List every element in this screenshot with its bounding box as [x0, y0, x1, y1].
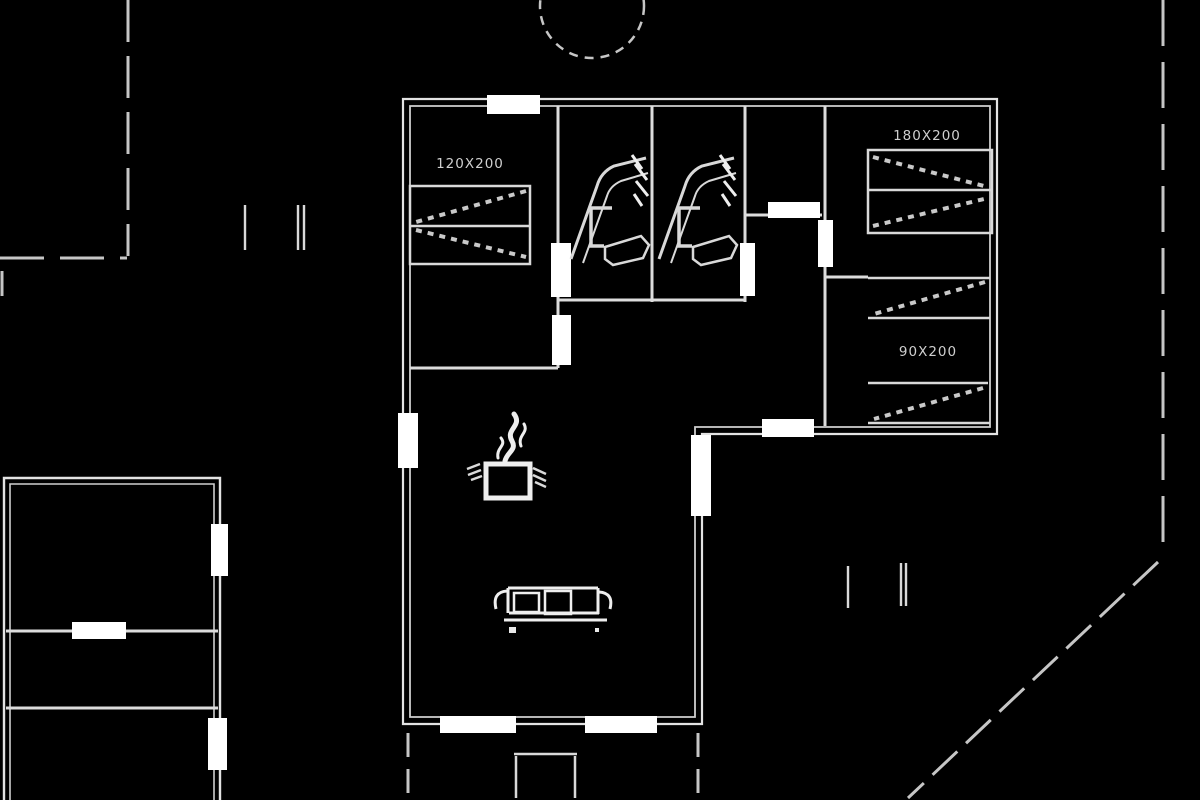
garage-door-opening-upper	[211, 524, 228, 576]
garage-inner-wall	[10, 484, 214, 800]
sofa-leg-left	[509, 627, 516, 633]
terrace	[408, 733, 698, 798]
fireplace-icon	[486, 464, 530, 498]
wall-openings	[398, 95, 833, 733]
flame-icon-small-left	[498, 438, 503, 458]
sofa	[495, 588, 611, 633]
faucet-icon	[632, 155, 648, 206]
sofa-cushion-1	[514, 593, 539, 612]
door-right-bedroom	[818, 220, 833, 267]
bed-hatch-single-1	[874, 282, 985, 314]
toilet-icon	[605, 236, 649, 265]
bed-size-label-single: 90X200	[899, 344, 957, 360]
window-top-wall	[487, 95, 540, 114]
floor-plan-page: 120X200 180X200 90X200	[0, 0, 1200, 800]
door-right-wing-south	[762, 419, 814, 437]
bed-hatch-single-2	[874, 388, 983, 419]
window-left-wall	[398, 413, 418, 468]
toilet-room-2	[659, 155, 737, 265]
window-bottom-right	[585, 716, 657, 733]
door-toilet2	[740, 243, 755, 296]
flame-icon-small-right	[520, 424, 525, 446]
fireplace	[467, 414, 546, 498]
interior-partition-walls	[410, 106, 868, 426]
bed-size-label-double: 180X200	[893, 128, 961, 144]
fireplace-mark-right	[533, 468, 546, 487]
terrace-step	[514, 754, 577, 798]
survey-markers	[245, 205, 906, 608]
toilet-room-1	[571, 155, 649, 265]
sofa-armrests	[495, 591, 611, 609]
window-bottom-left	[440, 716, 516, 733]
bedroom-right: 180X200 90X200	[868, 128, 992, 423]
garage-door-opening-middle	[72, 622, 126, 639]
door-closet-room	[768, 202, 820, 218]
house-outer-wall	[403, 99, 997, 724]
bed-hatch-double	[873, 157, 984, 226]
marker-icon	[245, 205, 906, 608]
garage-door-opening-lower	[208, 718, 227, 770]
tree-icon	[540, 0, 644, 58]
door-left-bedroom	[552, 315, 571, 365]
bed-size-label: 120X200	[436, 156, 504, 172]
fireplace-mark-left	[467, 464, 482, 480]
flame-icon	[505, 414, 517, 461]
door-living-room-east	[691, 435, 711, 516]
toilet-icon	[693, 236, 737, 265]
main-house-walls	[403, 99, 997, 724]
garage-partition-walls	[6, 631, 218, 708]
sofa-cushion-2	[545, 591, 571, 614]
garage-building	[4, 478, 228, 800]
faucet-icon	[720, 155, 736, 206]
floor-plan-canvas: 120X200 180X200 90X200	[0, 0, 1200, 800]
door-toilet1	[551, 243, 571, 297]
bed-hatch	[416, 191, 526, 257]
sofa-leg-right	[595, 628, 599, 632]
boundary-line-diagonal	[908, 562, 1158, 798]
terrace-edge-dashed	[408, 733, 698, 798]
site-boundaries	[0, 0, 1163, 798]
bedroom-left: 120X200	[410, 156, 530, 264]
